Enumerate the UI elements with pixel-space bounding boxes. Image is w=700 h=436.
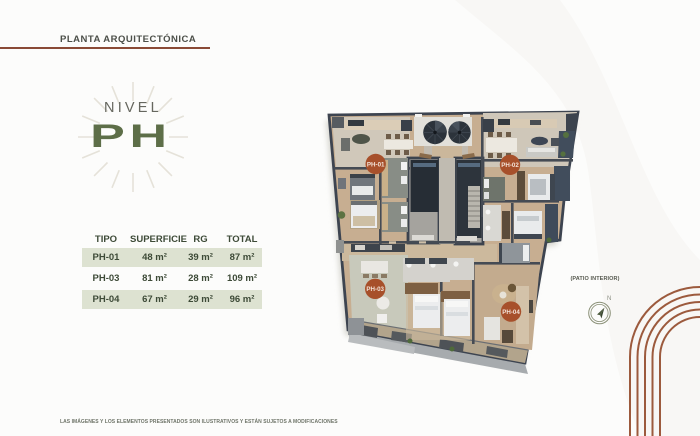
svg-text:PH-04: PH-04 xyxy=(502,309,520,316)
svg-text:N: N xyxy=(607,296,611,302)
svg-text:PH-03: PH-03 xyxy=(366,286,384,293)
svg-text:PH-02: PH-02 xyxy=(501,162,519,169)
svg-text:PH-01: PH-01 xyxy=(367,161,385,168)
